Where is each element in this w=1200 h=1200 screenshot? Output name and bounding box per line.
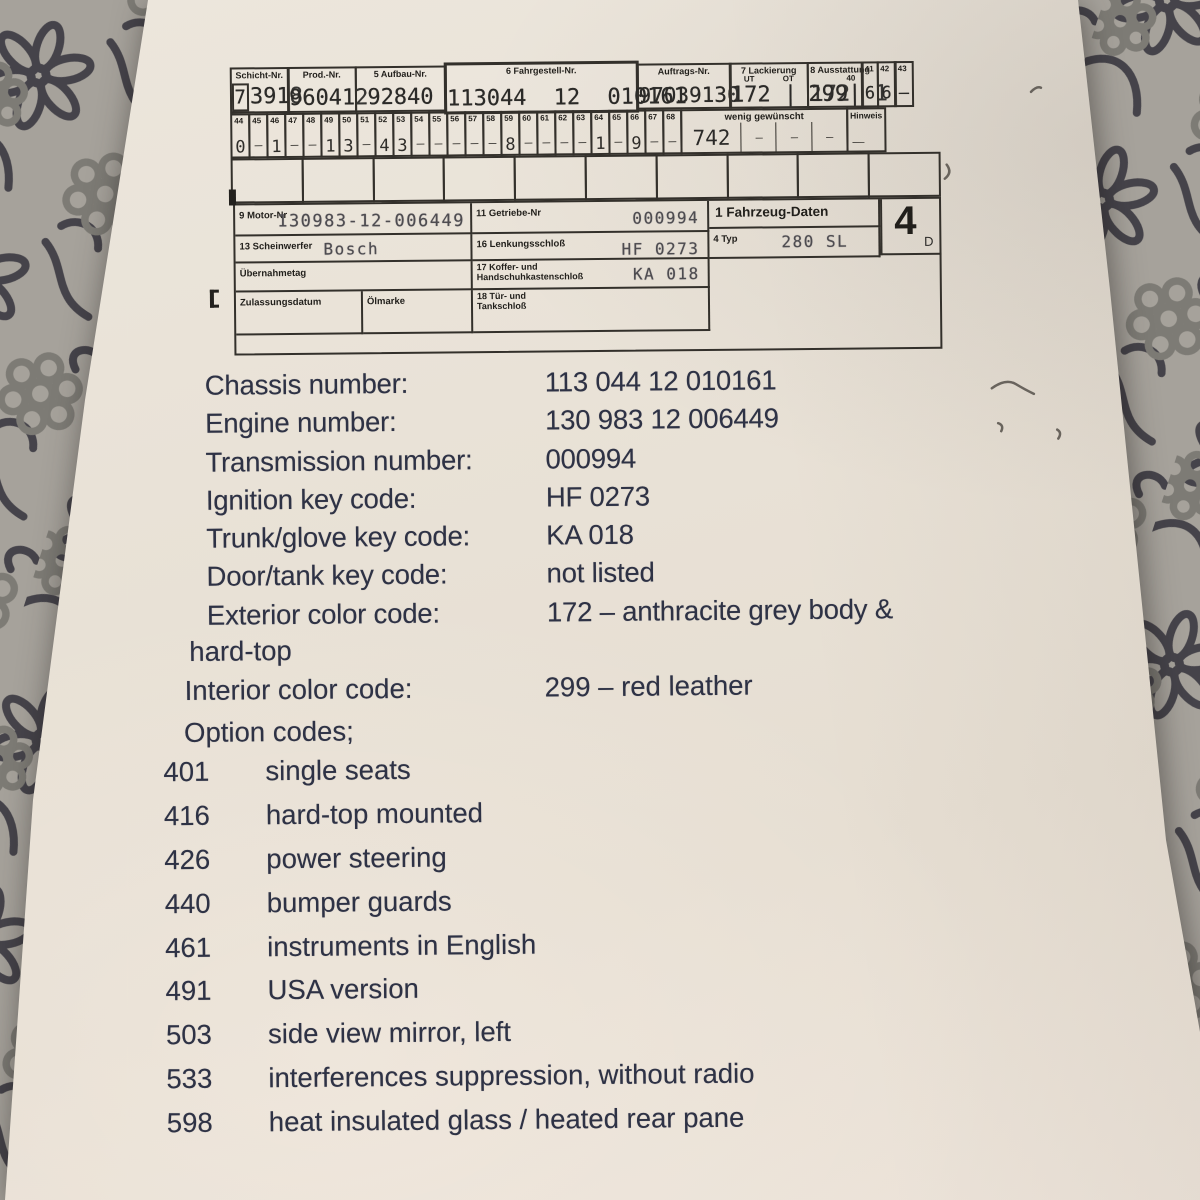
card-code-cell-number: 63 [574, 112, 590, 122]
option-label: instruments in English [267, 928, 536, 974]
field-kofferschloss: 17 Koffer- und Handschuhkastenschloß KA … [473, 259, 710, 290]
vehicle-data-card: Schicht-Nr.73918Prod.-Nr.9604125 Aufbau-… [232, 61, 943, 356]
option-row: 491USA version [165, 970, 754, 1020]
card-code-cell-value: – [646, 132, 662, 152]
card-code-cell-value: – [484, 134, 500, 154]
spec-value: not listed [546, 557, 654, 590]
spec-value: 000994 [545, 442, 636, 475]
option-codes-heading: Option codes; [184, 715, 354, 749]
wenig-blank: — [740, 122, 776, 152]
card-top-cell-prefix: 7 [231, 83, 249, 111]
option-label: single seats [265, 754, 411, 799]
option-row: 598heat insulated glass / heated rear pa… [167, 1102, 756, 1152]
field-motor-value: 130983-12-006449 [277, 211, 465, 231]
option-code: 491 [165, 975, 225, 1019]
option-row: 416hard-top mounted [164, 794, 753, 844]
card-top-row: Schicht-Nr.73918Prod.-Nr.9604125 Aufbau-… [232, 61, 914, 114]
oelmarke-label: Ölmarke [363, 294, 405, 307]
hinweis-value: — [848, 132, 884, 150]
card-code-cell-number: 55 [430, 113, 446, 123]
option-code: 416 [164, 800, 224, 844]
option-row: 440bumper guards [165, 882, 754, 932]
card-code-cell-number: 58 [484, 113, 500, 123]
option-code: 598 [167, 1107, 227, 1151]
card-code-cell-value: 9 [628, 135, 644, 153]
card-top-cell: Prod.-Nr.960412 [287, 66, 357, 113]
card-empty-cell [443, 156, 516, 202]
card-wenig-box: wenig gewünscht742——— [680, 108, 848, 155]
option-label: bumper guards [267, 885, 452, 931]
option-code: 426 [164, 843, 224, 887]
option-label: interferences suppression, without radio [268, 1058, 755, 1107]
page-content: Schicht-Nr.73918Prod.-Nr.9604125 Aufbau-… [0, 0, 1200, 1200]
card-code-cell-number: 52 [376, 114, 392, 124]
card-code-cell-value: 1 [268, 138, 284, 156]
spec-row: Transmission number:000994 [205, 440, 891, 485]
card-top-cell-label: 41 [863, 63, 877, 74]
card-code-cell-value: – [412, 135, 428, 155]
card-hinweis-box: Hinweis— [846, 107, 886, 152]
spec-value: 130 983 12 006449 [545, 403, 779, 437]
card-code-cell-number: 46 [268, 115, 284, 125]
card-code-cell-value: – [610, 133, 626, 153]
spec-value: HF 0273 [546, 480, 650, 513]
option-code: 533 [166, 1063, 226, 1107]
hinweis-label: Hinweis [848, 109, 884, 120]
kofferschloss-value: KA 018 [633, 264, 700, 284]
card-top-cell: 6 Fahrgestell-Nr.113044 12 010161 [444, 61, 639, 115]
field-zulassungsdatum: Zulassungsdatum [236, 291, 363, 335]
spec-label: Chassis number: [205, 367, 545, 402]
card-code-cell-value: – [466, 134, 482, 154]
card-empty-cell [301, 157, 374, 203]
card-code-cell-value: 3 [340, 137, 356, 155]
photo-of-vehicle-data-sheet: Schicht-Nr.73918Prod.-Nr.9604125 Aufbau-… [0, 0, 1200, 1200]
card-code-cell-number: 45 [250, 115, 266, 125]
option-label: heat insulated glass / heated rear pane [269, 1102, 745, 1150]
scan-artifact-bar [229, 189, 236, 205]
card-top-cell-label: 5 Aufbau-Nr. [356, 67, 444, 79]
card-code-cell-number: 50 [340, 114, 356, 124]
card-top-cell: 8 Ausstattung40299| 1 [806, 61, 863, 108]
scan-artifact-bracket [210, 290, 219, 308]
tuerschloss-label-line2: Tankschloß [473, 299, 708, 311]
spec-value: 113 044 12 010161 [545, 364, 777, 398]
option-label: hard-top mounted [266, 797, 484, 843]
lenkungsschloss-value: HF 0273 [621, 239, 699, 259]
card-code-cell-value: 0 [232, 138, 248, 156]
card-top-cell: 7 LackierungUT OT172 | 172 [729, 62, 809, 109]
wenig-cells: 742——— [682, 122, 846, 154]
card-code-cell-value: – [556, 133, 572, 153]
card-top-cell-label: Auftrags-Nr. [638, 65, 729, 77]
card-code-cell-value: – [448, 134, 464, 154]
card-code-cell-value: – [304, 136, 320, 156]
card-empty-cell [585, 154, 658, 200]
card-empty-cell [797, 152, 870, 198]
card-code-cell-number: 64 [592, 112, 608, 122]
card-top-cell-value: 113044 12 010161 [447, 86, 636, 112]
option-row: 503side view mirror, left [166, 1014, 755, 1064]
option-code: 440 [165, 887, 225, 931]
card-code-cell-number: 59 [502, 113, 518, 123]
card-top-cell-value: 6 [878, 81, 894, 105]
lenkungsschloss-label: 16 Lenkungsschloß [472, 236, 565, 250]
spec-list: Chassis number:113 044 12 010161Engine n… [205, 363, 894, 638]
card-code-cell-number: 68 [664, 111, 680, 121]
zulassungsdatum-label: Zulassungsdatum [236, 295, 321, 309]
card-top-cell-value: 92840 [356, 85, 444, 110]
card-top-cell: Schicht-Nr.73918 [229, 67, 289, 114]
card-empty-cell [868, 152, 941, 198]
wenig-value: 742 [682, 123, 741, 154]
card-code-cell-value: 1 [592, 135, 608, 153]
card-lower-block: 9 Motor-Nr 130983-12-006449 11 Getriebe-… [233, 197, 942, 356]
card-code-cell-number: 48 [304, 115, 320, 125]
spec-label: Ignition key code: [206, 481, 546, 516]
card-top-cell-value: 299| 1 [808, 82, 861, 107]
card-code-cell-value: – [574, 133, 590, 153]
card-code-cell-number: 62 [556, 112, 572, 122]
card-code-cell-value: – [538, 133, 554, 153]
spec-label: Exterior color code: [207, 596, 547, 631]
card-code-cell-number: 49 [322, 115, 338, 125]
card-code-cell-number: 65 [610, 112, 626, 122]
spec-row: Trunk/glove key code:KA 018 [206, 516, 892, 561]
card-empty-cell [726, 153, 799, 199]
field-fahrzeug-daten: 1 Fahrzeug-Daten [709, 199, 880, 229]
card-code-cell-number: 51 [358, 114, 374, 124]
uebernahmetag-label: Übernahmetag [236, 266, 307, 280]
field-scheinwerfer: 13 Scheinwerfer Bosch [235, 234, 472, 263]
spec-label: Engine number: [205, 405, 545, 440]
field-class-box: 4 D [880, 199, 942, 256]
card-code-cell-number: 60 [520, 113, 536, 123]
card-code-cell-number: 61 [538, 112, 554, 122]
spec-label: Door/tank key code: [206, 558, 546, 593]
class-box-sub: D [924, 234, 934, 249]
option-codes-list: 401single seats416hard-top mounted426pow… [163, 751, 755, 1152]
card-top-cell-value: 172 | 172 [731, 83, 807, 108]
card-code-cell-value: 1 [322, 138, 338, 156]
card-top-cell-value: 73918 [231, 83, 287, 112]
card-code-cell-value: 8 [502, 136, 518, 154]
card-top-cell-value: – [896, 81, 912, 105]
card-empty-cell [655, 154, 728, 200]
card-top-cell: 5 Aufbau-Nr.92840 [354, 65, 446, 112]
card-code-row: 44045–46147–48–49150351–52453354–55–56–5… [232, 107, 886, 158]
option-row: 533interferences suppression, without ra… [166, 1058, 755, 1108]
card-code-cell-value: – [520, 134, 536, 154]
card-code-cell-number: 44 [232, 115, 248, 125]
card-code-cell-value: – [250, 136, 266, 156]
card-code-cell-value: 3 [394, 137, 410, 155]
field-getriebe-value: 000994 [632, 208, 699, 228]
field-getriebe-label: 11 Getriebe-Nr [472, 206, 541, 220]
field-getriebe-nr: 11 Getriebe-Nr 000994 [472, 201, 709, 234]
card-top-cell-value: 6 [863, 81, 877, 105]
option-label: side view mirror, left [268, 1016, 511, 1062]
typ-label: 4 Typ [709, 232, 737, 245]
typ-value: 280 SL [781, 232, 848, 252]
spec-label: Transmission number: [205, 443, 545, 478]
wenig-blank: — [811, 122, 847, 152]
card-code-cell-number: 56 [448, 113, 464, 123]
spec-value: KA 018 [546, 519, 634, 552]
spec-row: Door/tank key code:not listed [206, 555, 892, 600]
scheinwerfer-value: Bosch [323, 239, 379, 259]
card-code-cell-value: – [430, 134, 446, 154]
spec-row: Chassis number:113 044 12 010161 [205, 363, 891, 408]
spec-row: Engine number:130 983 12 006449 [205, 402, 891, 447]
card-top-cell-label: Schicht-Nr. [231, 69, 287, 81]
card-code-cell-number: 57 [466, 113, 482, 123]
option-label: power steering [266, 841, 447, 887]
card-top-cell-label: Prod.-Nr. [289, 68, 355, 80]
option-row: 401single seats [163, 751, 752, 801]
option-code: 461 [165, 931, 225, 975]
card-code-cell-number: 47 [286, 115, 302, 125]
card-code-cell-value: – [664, 132, 680, 152]
field-tuerschloss: 18 Tür- und Tankschloß [473, 288, 710, 333]
field-oelmarke: Ölmarke [363, 290, 473, 334]
card-top-cell: 43– [894, 61, 914, 107]
wenig-blank: — [776, 122, 812, 152]
card-code-cell-number: 67 [646, 111, 662, 121]
spec-row: Exterior color code:172 – anthracite gre… [207, 593, 893, 638]
option-code: 401 [163, 756, 223, 800]
spec-label: Trunk/glove key code: [206, 520, 546, 555]
card-empty-row [233, 152, 941, 204]
card-code-cell-number: 66 [628, 112, 644, 122]
interior-label: Interior color code: [185, 672, 545, 707]
option-row: 426power steering [164, 838, 753, 888]
card-code-cell-value: – [358, 135, 374, 155]
card-top-cell-label: 43 [896, 63, 912, 74]
card-empty-cell [372, 156, 445, 202]
card-code-cell-number: 54 [412, 114, 428, 124]
interior-value: 299 – red leather [545, 670, 753, 704]
card-empty-cell [514, 155, 587, 201]
card-code-cell-number: 53 [394, 114, 410, 124]
card-code-cell-value: – [286, 136, 302, 156]
spec-continuation-line: hard-top [189, 635, 292, 668]
card-top-cell-label: 42 [878, 63, 894, 74]
fahrzeug-daten-label: 1 Fahrzeug-Daten [709, 199, 878, 220]
card-empty-cell [231, 158, 304, 204]
spec-row: Ignition key code:HF 0273 [206, 478, 892, 523]
field-lenkungsschloss: 16 Lenkungsschloß HF 0273 [472, 232, 709, 261]
field-motor-nr: 9 Motor-Nr 130983-12-006449 [235, 203, 472, 236]
option-label: USA version [267, 973, 419, 1018]
scheinwerfer-label: 13 Scheinwerfer [235, 239, 312, 253]
card-code-cell-value: 4 [376, 137, 392, 155]
spec-value: 172 – anthracite grey body & [547, 593, 893, 628]
option-code: 503 [166, 1019, 226, 1063]
option-row: 461instruments in English [165, 926, 754, 976]
card-top-cell-label: 6 Fahrgestell-Nr. [447, 64, 636, 77]
spec-row-interior: Interior color code: 299 – red leather [185, 670, 753, 707]
field-uebernahmetag: Übernahmetag [236, 261, 473, 292]
field-typ: 4 Typ 280 SL [709, 227, 880, 259]
card-top-cell-value: 960412 [289, 86, 355, 111]
